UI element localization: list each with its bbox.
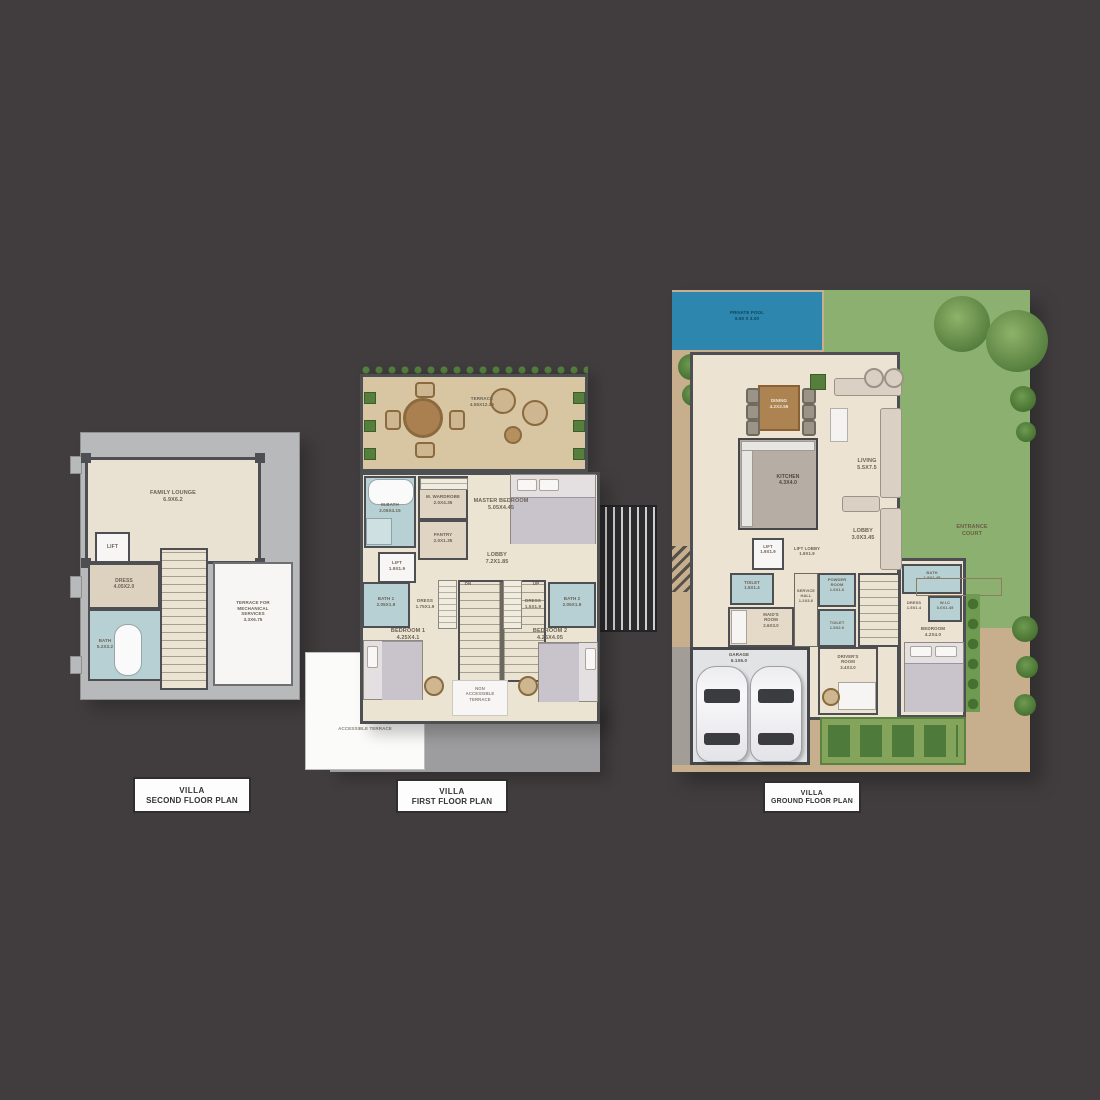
bush-icon: [1016, 656, 1038, 678]
staircase: [458, 580, 546, 682]
planter-icon: [573, 448, 585, 460]
armchair-icon: [518, 676, 538, 696]
bed-icon: [538, 642, 598, 702]
lounge-chair-icon: [522, 400, 548, 426]
blanket-icon: [905, 663, 963, 712]
dress-room: [88, 563, 160, 609]
chair-icon: [746, 388, 760, 404]
driveway: [672, 647, 690, 765]
lift-room: [378, 552, 416, 583]
sofa-icon: [880, 508, 902, 570]
trellis-cells: [828, 725, 958, 757]
first-floor-caption: VILLA FIRST FLOOR PLAN: [396, 779, 508, 813]
car-icon: [750, 666, 802, 762]
shower-icon: [366, 518, 392, 545]
caption-subtitle: FIRST FLOOR PLAN: [412, 797, 493, 806]
car-windshield: [704, 689, 740, 703]
closet-icon: [503, 580, 522, 629]
planter-icon: [364, 448, 376, 460]
bed-icon: [838, 682, 876, 710]
planter-icon: [573, 420, 585, 432]
chair-icon: [802, 388, 816, 404]
second-floor-plan: FAMILY LOUNGE 6.9x6.2 LIFT DRESS 4.05x2.…: [68, 428, 300, 705]
planter-icon: [573, 392, 585, 404]
bush-icon: [1012, 616, 1038, 642]
closet-icon: [420, 478, 468, 490]
service-hall: [794, 573, 818, 647]
chair-icon: [802, 420, 816, 436]
car-windshield: [758, 689, 794, 703]
bush-icon: [1016, 422, 1036, 442]
chair-icon: [415, 442, 435, 458]
sofa-icon: [880, 408, 902, 498]
balcony-tab: [70, 576, 82, 598]
chair-icon: [449, 410, 465, 430]
blanket-icon: [539, 643, 579, 702]
pillow-icon: [539, 479, 559, 491]
round-table-icon: [403, 398, 443, 438]
armchair-icon: [884, 368, 904, 388]
first-floor-plan: NON ACCESSIBLE TERRACE TERRACE 4.55x12.1…: [352, 362, 604, 774]
staircase: [858, 573, 900, 647]
bath1-room: [362, 582, 410, 628]
bed-icon: [731, 610, 747, 644]
bench-icon: [842, 496, 880, 512]
armchair-icon: [424, 676, 444, 696]
floorplan-sheet: FAMILY LOUNGE 6.9x6.2 LIFT DRESS 4.05x2.…: [0, 0, 1100, 1100]
garden-trellis: [820, 717, 966, 765]
car-rear-window: [704, 733, 740, 745]
lift-room: [95, 532, 130, 563]
private-pool: [672, 292, 822, 350]
bathtub-icon: [368, 479, 414, 505]
pillow-icon: [517, 479, 537, 491]
dining-table-icon: [758, 385, 800, 431]
wic-room: [928, 596, 962, 622]
bathtub-icon: [114, 624, 142, 676]
blanket-icon: [511, 497, 595, 544]
bath2-room: [548, 582, 596, 628]
court-marking: [916, 578, 1002, 596]
tree-icon: [934, 296, 990, 352]
car-icon: [696, 666, 748, 762]
caption-subtitle: GROUND FLOOR PLAN: [771, 798, 853, 805]
balcony-tab: [70, 656, 82, 674]
closet-icon: [438, 580, 457, 629]
mechanical-terrace: [213, 562, 293, 686]
column-pier: [81, 453, 91, 463]
planter-icon: [364, 392, 376, 404]
pillow-icon: [910, 646, 932, 657]
powder-room: [818, 573, 856, 607]
bush-icon: [1014, 694, 1036, 716]
second-floor-caption: VILLA SECOND FLOOR PLAN: [133, 777, 251, 813]
armchair-icon: [864, 368, 884, 388]
caption-title: VILLA: [801, 790, 824, 797]
caption-subtitle: SECOND FLOOR PLAN: [146, 796, 238, 805]
pillow-icon: [367, 646, 378, 668]
side-table-icon: [504, 426, 522, 444]
pantry-room: [418, 520, 468, 560]
tree-icon: [986, 310, 1048, 372]
caption-title: VILLA: [179, 786, 205, 795]
chair-icon: [746, 420, 760, 436]
chair-icon: [415, 382, 435, 398]
pillow-icon: [935, 646, 957, 657]
staircase: [160, 548, 208, 690]
bed-icon: [904, 642, 964, 712]
caption-title: VILLA: [439, 787, 465, 796]
hedge-strip: [966, 594, 980, 712]
pillow-icon: [585, 648, 596, 670]
bush-icon: [1010, 386, 1036, 412]
chair-icon: [385, 410, 401, 430]
kitchen-counter: [741, 441, 815, 451]
planter-icon: [364, 420, 376, 432]
armchair-icon: [822, 688, 840, 706]
car-rear-window: [758, 733, 794, 745]
column-pier: [255, 453, 265, 463]
lounge-chair-icon: [490, 388, 516, 414]
chair-icon: [746, 404, 760, 420]
blanket-icon: [382, 641, 422, 700]
chair-icon: [802, 404, 816, 420]
coffee-table-icon: [830, 408, 848, 442]
toilet2-room: [818, 609, 856, 647]
toilet-room: [730, 573, 774, 605]
kitchen-counter: [741, 441, 753, 527]
ground-floor-caption: VILLA GROUND FLOOR PLAN: [763, 781, 861, 813]
ground-floor-plan: PRIVATE POOL 6.50 x 3.00 DINING 4.2x3.55…: [672, 290, 1030, 772]
bed-icon: [510, 474, 596, 544]
planter-icon: [810, 374, 826, 390]
terrace-note-box: [452, 680, 508, 716]
bed-icon: [363, 640, 423, 700]
lift-room: [752, 538, 784, 570]
